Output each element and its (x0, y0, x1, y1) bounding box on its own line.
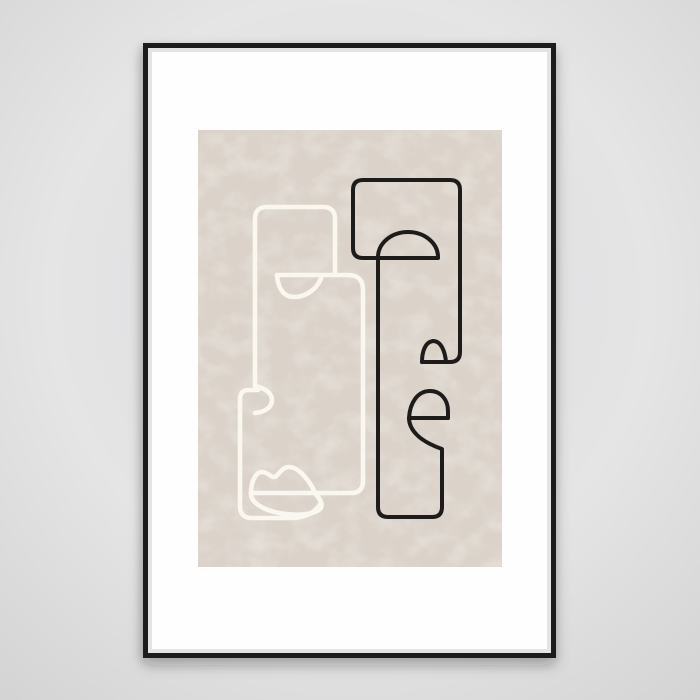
framed-art-scene (0, 0, 700, 700)
artwork-grain-texture (198, 130, 502, 567)
product-photo (0, 0, 700, 700)
